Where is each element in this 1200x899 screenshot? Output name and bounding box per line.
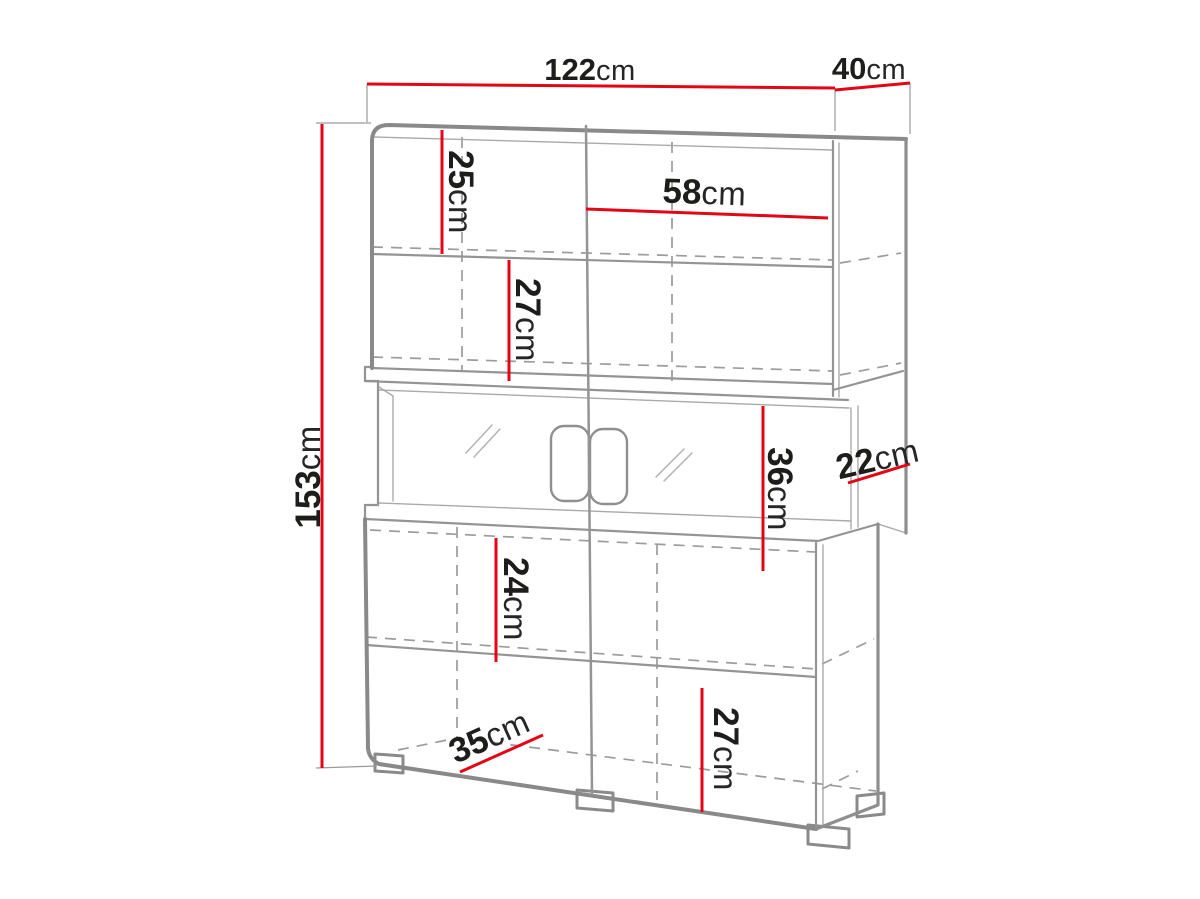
dimension-label-top-depth: 40cm [832,51,906,86]
upper-shelf-front-edge [372,254,833,267]
dimension-label-bottom-compartment: 27cm [706,707,745,791]
diagram-canvas: 122cm 40cm 153cm 25cm 58cm 27cm 36cm 22c… [0,0,1200,899]
cabinet-dimension-diagram: 122cm 40cm 153cm 25cm 58cm 27cm 36cm 22c… [0,0,1200,899]
middle-opening-top-inner [379,390,849,408]
dimension-unit: cm [866,54,906,86]
dimension-unit: cm [290,425,327,470]
dimension-label-upper-shelf-width: 58cm [662,172,747,214]
glass-hatch-mark [466,425,492,453]
witness-line [316,766,377,768]
dimension-unit: cm [707,746,744,791]
dimension-label-total-height: 153cm [289,425,328,528]
dimension-labels: 122cm 40cm 153cm 25cm 58cm 27cm 36cm 22c… [289,51,923,791]
dimension-value: 27 [706,707,745,746]
dimension-unit: cm [442,189,479,234]
dimension-value: 25 [441,150,480,189]
dimension-label-lower-compartment: 24cm [496,557,535,641]
dimension-value: 153 [289,470,328,528]
dimension-label-second-compartment: 27cm [508,278,547,362]
dimension-unit: cm [870,431,922,477]
dimension-value: 36 [760,447,799,486]
dashed-lines [366,137,901,800]
dimension-label-middle-depth: 22cm [832,430,922,487]
hutch-bottom-edge [372,368,833,384]
middle-back-step-edge [878,524,906,533]
dimension-unit: cm [497,596,534,641]
dimension-label-middle-opening: 36cm [760,447,799,531]
dimension-value: 27 [508,278,547,317]
lower-top-dashed-line [370,530,815,552]
dimension-label-bottom-depth: 35cm [443,702,535,772]
lower-top-side-edge [818,524,878,541]
dimension-value: 122 [544,52,596,87]
handle-cutout-left [551,426,589,501]
glass-hatch-mark [664,453,692,481]
dimension-value: 24 [496,557,535,596]
side-shelf-dashed-line [840,253,901,263]
dimension-label-top-width: 122cm [544,52,636,87]
glass-hatch-mark [656,449,684,477]
dimension-value: 40 [832,51,866,86]
outline-bottom-side [816,524,878,829]
handle-cutout-right [590,429,627,504]
dimension-unit: cm [509,317,546,362]
upper-shelf-dashed-line [372,357,833,371]
glass-hatch-mark [474,429,500,457]
witness-lines [316,83,910,768]
lower-top-edge [365,519,818,541]
hutch-underside-edge [365,381,848,400]
dimension-unit: cm [596,55,636,87]
left-lip-upper [365,367,378,519]
middle-corner-edge [379,387,393,396]
dimension-unit: cm [701,174,747,213]
dimension-label-upper-compartment: 25cm [441,150,480,234]
interior-lines [374,137,906,826]
dimension-value: 58 [662,172,702,212]
side-shelf-dashed-line [822,639,874,664]
dimension-unit: cm [761,486,798,531]
foot-back-right [857,793,884,817]
